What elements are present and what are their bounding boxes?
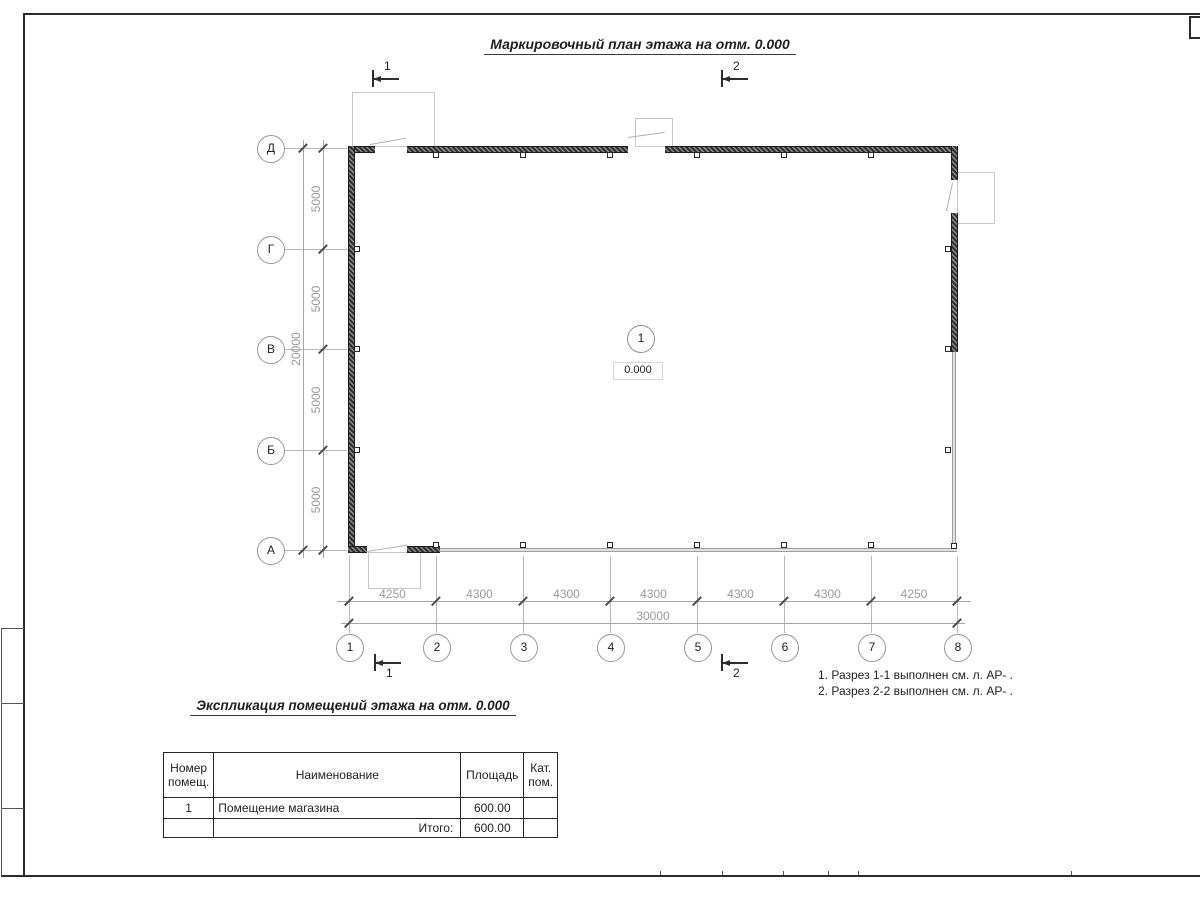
titleblock-tick xyxy=(828,871,829,875)
row-axis-bubble: Б xyxy=(257,437,285,465)
axis-extension-line xyxy=(871,556,872,633)
notes-block: 1. Разрез 1-1 выполнен см. л. АР- . 2. Р… xyxy=(818,667,1013,699)
axis-leader-line xyxy=(283,249,347,250)
titleblock-tick xyxy=(722,871,723,875)
cell-total-label: Итого: xyxy=(214,819,461,838)
cell-total-area: 600.00 xyxy=(461,819,524,838)
column-marker xyxy=(433,542,439,548)
dimension-value: 4300 xyxy=(537,587,597,601)
axis-leader-line xyxy=(283,148,347,149)
dimension-total-value: 20000 xyxy=(289,323,303,375)
col-axis-bubble: 6 xyxy=(771,634,799,662)
column-marker xyxy=(868,152,874,158)
axis-extension-line xyxy=(523,556,524,633)
dimension-total-value: 30000 xyxy=(603,609,703,623)
titleblock-tick xyxy=(660,871,661,875)
row-axis-bubble: А xyxy=(257,537,285,565)
column-marker xyxy=(354,246,360,252)
column-marker xyxy=(945,246,951,252)
col-header-name: Наименование xyxy=(214,753,461,798)
column-marker xyxy=(520,542,526,548)
dimension-value: 4300 xyxy=(450,587,510,601)
col-axis-bubble: 8 xyxy=(944,634,972,662)
dimension-value: 5000 xyxy=(309,378,323,422)
dimension-value: 4250 xyxy=(884,587,944,601)
column-marker xyxy=(433,152,439,158)
note-line: 1. Разрез 1-1 выполнен см. л. АР- . xyxy=(818,667,1013,683)
table-row: 1 Помещение магазина 600.00 xyxy=(164,798,558,819)
column-marker xyxy=(694,152,700,158)
cell-room-number: 1 xyxy=(164,798,214,819)
table-total-row: Итого: 600.00 xyxy=(164,819,558,838)
row-axis-bubble: В xyxy=(257,336,285,364)
column-marker xyxy=(868,542,874,548)
axis-extension-line xyxy=(436,556,437,633)
col-header-area: Площадь xyxy=(461,753,524,798)
column-marker xyxy=(951,543,957,549)
titleblock-tick xyxy=(1071,871,1072,875)
cell-room-name: Помещение магазина xyxy=(214,798,461,819)
cell-empty xyxy=(524,819,558,838)
axis-extension-line xyxy=(784,556,785,633)
column-marker xyxy=(781,152,787,158)
column-marker xyxy=(945,447,951,453)
column-marker xyxy=(607,152,613,158)
dimension-value: 4300 xyxy=(798,587,858,601)
row-axis-bubble: Д xyxy=(257,135,285,163)
explication-table: Номер помещ. Наименование Площадь Кат. п… xyxy=(163,752,558,838)
table-title: Экспликация помещений этажа на отм. 0.00… xyxy=(143,698,563,716)
col-axis-bubble: 4 xyxy=(597,634,625,662)
axis-leader-line xyxy=(283,550,347,551)
col-axis-bubble: 7 xyxy=(858,634,886,662)
dimension-value: 4250 xyxy=(363,587,423,601)
column-marker xyxy=(354,346,360,352)
column-marker xyxy=(945,346,951,352)
col-axis-bubble: 1 xyxy=(336,634,364,662)
titleblock-tick xyxy=(783,871,784,875)
cell-room-area: 600.00 xyxy=(461,798,524,819)
column-marker xyxy=(520,152,526,158)
column-marker xyxy=(781,542,787,548)
table-title-text: Экспликация помещений этажа на отм. 0.00… xyxy=(190,698,515,716)
cell-room-category xyxy=(524,798,558,819)
col-axis-bubble: 2 xyxy=(423,634,451,662)
titleblock-tick xyxy=(858,871,859,875)
dimension-value: 4300 xyxy=(711,587,771,601)
column-marker xyxy=(694,542,700,548)
col-header-number: Номер помещ. xyxy=(164,753,214,798)
axis-leader-line xyxy=(283,450,347,451)
col-axis-bubble: 5 xyxy=(684,634,712,662)
col-header-category: Кат. пом. xyxy=(524,753,558,798)
column-marker xyxy=(607,542,613,548)
dimension-value: 5000 xyxy=(309,277,323,321)
dimension-value: 5000 xyxy=(309,478,323,522)
col-axis-bubble: 3 xyxy=(510,634,538,662)
note-line: 2. Разрез 2-2 выполнен см. л. АР- . xyxy=(818,683,1013,699)
table-header-row: Номер помещ. Наименование Площадь Кат. п… xyxy=(164,753,558,798)
drawing-sheet: Маркировочный план этажа на отм. 0.000 1… xyxy=(0,0,1200,900)
dimension-value: 4300 xyxy=(624,587,684,601)
cell-empty xyxy=(164,819,214,838)
column-marker xyxy=(354,447,360,453)
dimension-value: 5000 xyxy=(309,177,323,221)
row-axis-bubble: Г xyxy=(257,236,285,264)
